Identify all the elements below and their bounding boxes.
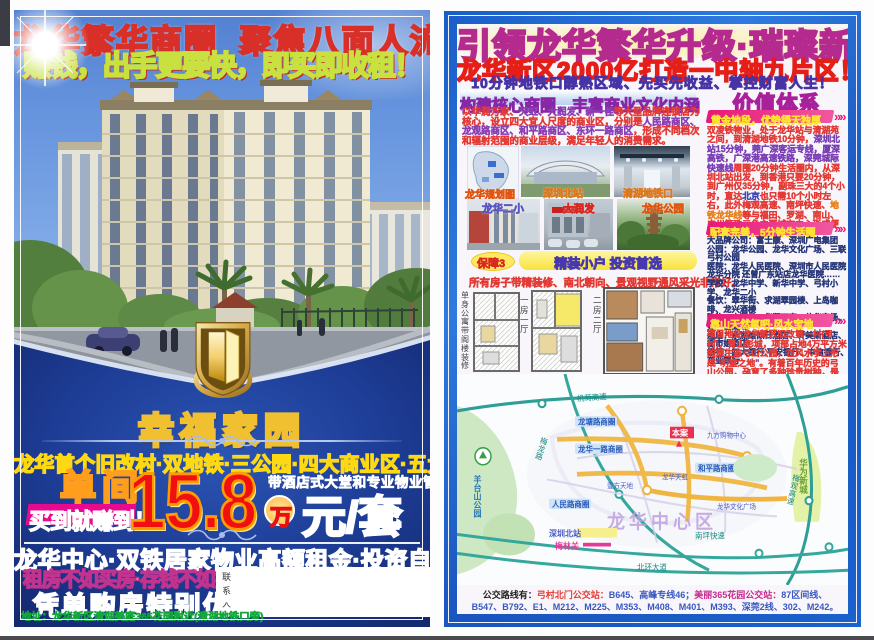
svg-text:羊台山公园: 羊台山公园 — [473, 474, 482, 518]
svg-text:龙华天虹: 龙华天虹 — [662, 472, 688, 481]
svg-text:九方购物中心: 九方购物中心 — [707, 430, 746, 439]
svg-text:人民路商圈: 人民路商圈 — [552, 499, 590, 509]
svg-text:深圳北站: 深圳北站 — [549, 528, 582, 538]
svg-text:梅林关: 梅林关 — [555, 541, 580, 551]
svg-text:北环大道: 北环大道 — [637, 562, 667, 572]
svg-text:龙华中心区: 龙华中心区 — [607, 511, 717, 533]
svg-text:和平路商圈: 和平路商圈 — [697, 463, 736, 473]
svg-text:南坪快速: 南坪快速 — [695, 530, 725, 540]
svg-text:机荷高速: 机荷高速 — [576, 391, 607, 403]
svg-text:本案: 本案 — [672, 428, 689, 438]
svg-text:壹方天地: 壹方天地 — [607, 481, 633, 490]
svg-text:龙塘路商圈: 龙塘路商圈 — [577, 416, 616, 426]
svg-text:龙华文化广场: 龙华文化广场 — [717, 502, 756, 511]
svg-text:龙华一路商圈: 龙华一路商圈 — [577, 444, 623, 454]
